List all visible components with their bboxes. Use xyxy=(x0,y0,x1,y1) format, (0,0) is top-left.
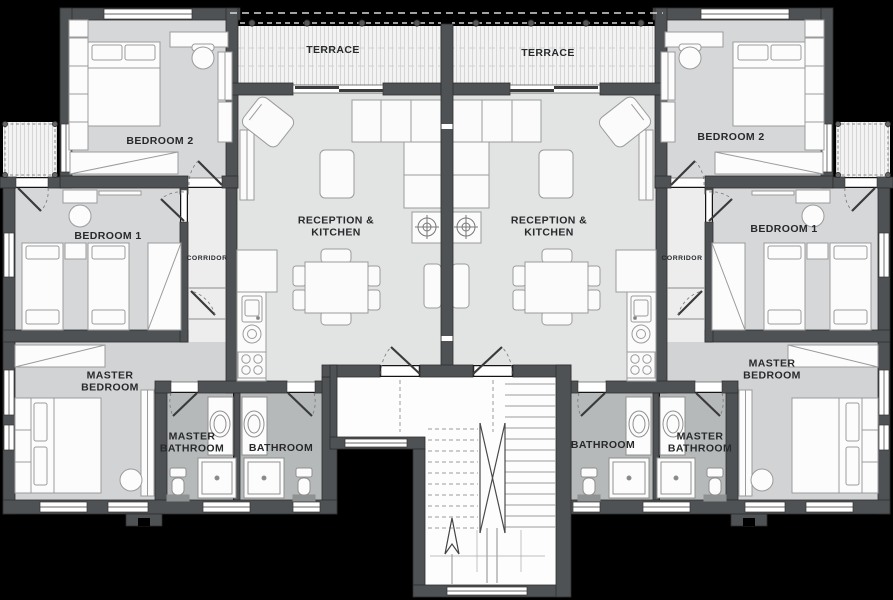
twin-bed-icon xyxy=(88,243,129,330)
desk-icon xyxy=(63,190,97,203)
twin-bed-icon xyxy=(22,243,63,330)
shower-icon xyxy=(198,458,236,498)
sliding-door-icon xyxy=(293,85,383,93)
fridge-icon xyxy=(237,250,277,292)
nightstand-icon xyxy=(65,243,86,259)
balcony-deck xyxy=(3,122,57,177)
side-table-lamp-icon xyxy=(412,212,443,243)
shower-icon xyxy=(244,458,284,498)
kitchen-sink-icon xyxy=(242,296,262,322)
double-bed-icon xyxy=(15,398,101,493)
terrace-deck xyxy=(238,26,441,88)
round-table-icon xyxy=(120,469,142,491)
floor-plan-page: TERRACE TERRACE BEDROOM 2 BEDROOM 2 RECE… xyxy=(0,0,893,600)
wardrobe-icon xyxy=(141,390,154,496)
coffee-table-icon xyxy=(320,150,354,198)
chair-icon xyxy=(69,205,91,227)
bench-icon xyxy=(70,152,178,174)
stove-icon xyxy=(238,352,266,378)
bench-icon xyxy=(15,345,105,367)
wardrobe-icon xyxy=(148,243,181,330)
console-icon xyxy=(424,264,441,308)
floor-plan-svg xyxy=(0,0,893,600)
chair-icon xyxy=(192,47,214,69)
double-bed-icon xyxy=(88,42,160,126)
